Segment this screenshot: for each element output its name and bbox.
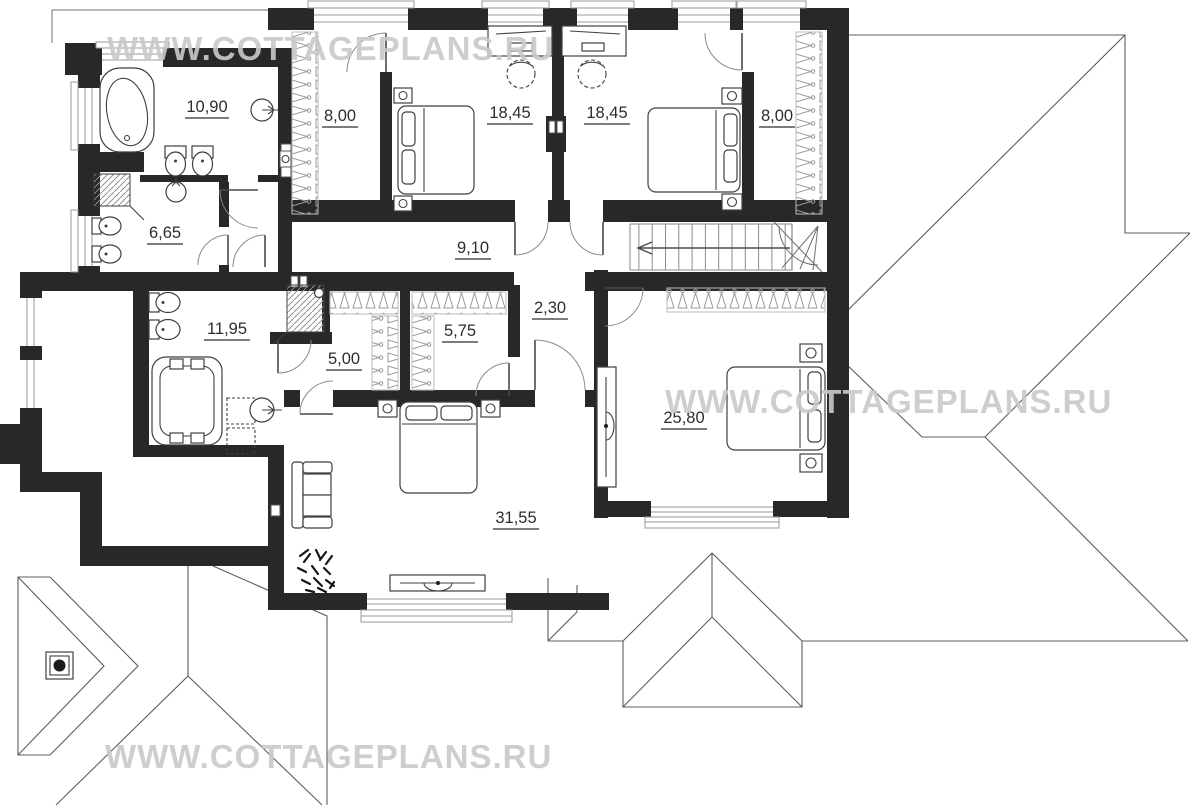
area-label-hall-passage: 2,30 — [534, 299, 566, 317]
roof-outline-right — [548, 35, 1190, 641]
toilet-icon — [92, 245, 121, 263]
bidet-icon — [192, 146, 213, 176]
tv-stand-icon — [390, 575, 485, 591]
door-hall-nook — [233, 235, 265, 267]
area-label-wardrobe-right: 8,00 — [761, 107, 793, 125]
area-label-bathroom-top-left: 10,90 — [186, 98, 227, 116]
door-master-bathroom — [278, 340, 311, 373]
bed-icon — [398, 106, 474, 194]
plant-icon — [298, 550, 334, 592]
door-bedroom-center — [570, 222, 603, 255]
corner-bathtub-icon — [100, 68, 154, 152]
tv-stand-icon — [597, 367, 616, 487]
floor-plan-canvas: 10,90 8,00 18,45 18,45 8,00 6,65 9,10 11… — [0, 0, 1190, 807]
area-label-master-bedroom: 31,55 — [495, 509, 536, 527]
shower-cabin-icon — [94, 174, 144, 220]
area-label-bedroom-left: 18,45 — [489, 104, 530, 122]
roof-gable-bottom-center — [548, 553, 802, 707]
room-toilet — [92, 174, 186, 263]
floor-plan-drawing: 10,90 8,00 18,45 18,45 8,00 6,65 9,10 11… — [0, 0, 1190, 807]
toilet-icon — [92, 217, 121, 235]
stairs — [630, 222, 822, 272]
round-sink-icon — [251, 99, 278, 121]
bed-icon — [648, 108, 740, 192]
wall-sink-icon — [149, 293, 180, 313]
area-label-toilet: 6,65 — [149, 224, 181, 242]
sofa-icon — [292, 462, 332, 528]
nightstand-icon — [722, 194, 742, 210]
nightstand-icon — [378, 400, 397, 417]
door-bedroom-right — [605, 288, 643, 326]
room-master-bathroom — [149, 285, 324, 454]
door-closet-left — [300, 381, 333, 414]
nightstand-icon — [722, 88, 742, 104]
wall-sink-icon — [149, 320, 180, 340]
door-bedroom-left — [515, 222, 548, 255]
watermark-bottom: WWW.COTTAGEPLANS.RU — [105, 738, 552, 775]
desk-icon — [562, 26, 626, 56]
nightstand-icon — [800, 344, 822, 362]
area-label-closet-left: 5,00 — [328, 350, 360, 368]
room-master-bedroom — [292, 400, 500, 592]
door-toilet — [198, 235, 228, 265]
chair-icon — [578, 60, 606, 88]
bed-icon — [400, 402, 477, 493]
area-label-hallway: 9,10 — [457, 239, 489, 257]
jacuzzi-icon — [152, 357, 222, 445]
area-label-wardrobe-left: 8,00 — [324, 107, 356, 125]
watermark-middle: WWW.COTTAGEPLANS.RU — [665, 383, 1112, 420]
chimney-icon — [46, 652, 73, 679]
nightstand-icon — [800, 454, 822, 472]
nightstand-icon — [394, 196, 412, 211]
bidet-icon — [165, 146, 186, 176]
area-label-closet-right: 5,75 — [444, 322, 476, 340]
roof-bay-chevron-left — [18, 577, 138, 755]
nightstand-icon — [394, 88, 412, 103]
watermark-top: WWW.COTTAGEPLANS.RU — [107, 30, 554, 67]
door-wardrobe-right — [705, 33, 742, 70]
area-label-bedroom-center: 18,45 — [586, 104, 627, 122]
nightstand-icon — [481, 400, 500, 417]
area-label-master-bathroom: 11,95 — [207, 320, 247, 338]
door-hall-passage — [535, 340, 585, 390]
pedestal-sink-icon — [250, 398, 282, 422]
